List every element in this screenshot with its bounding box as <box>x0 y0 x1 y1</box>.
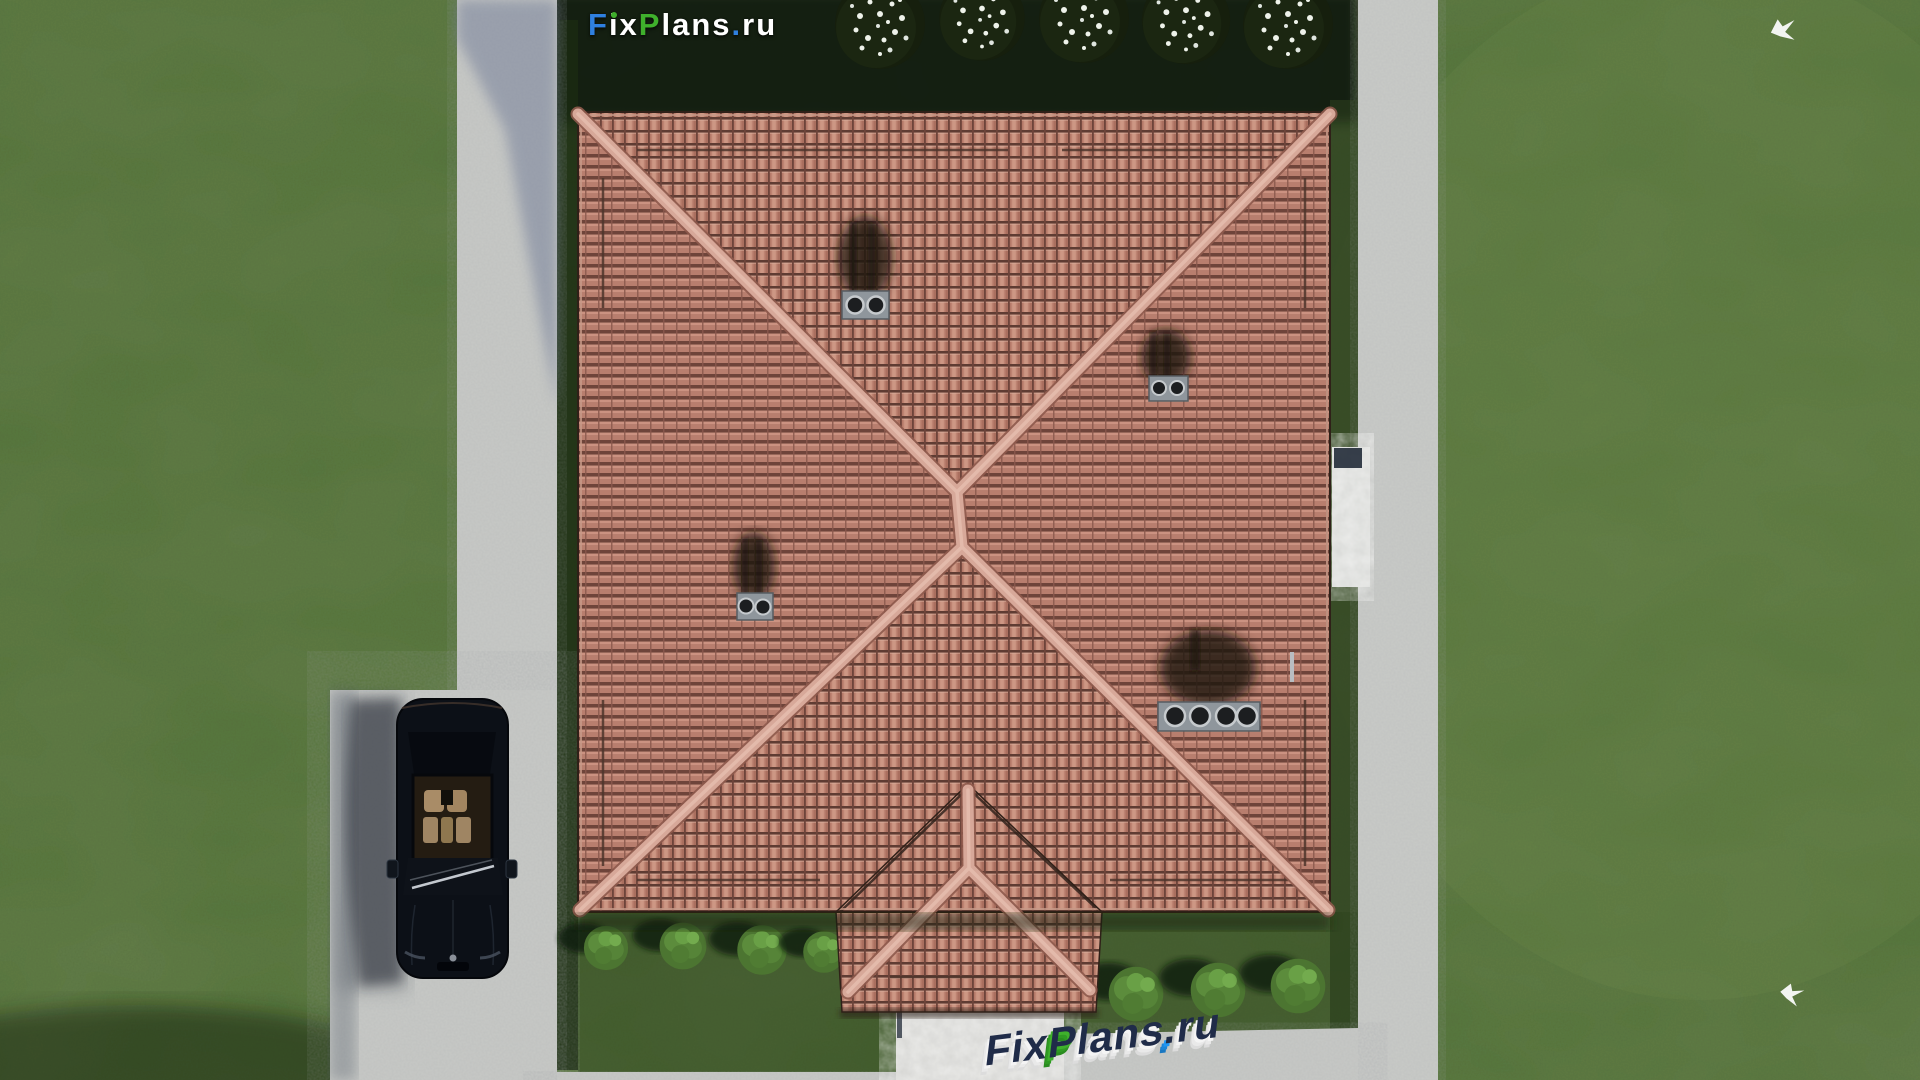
chimney-2 <box>1149 376 1188 401</box>
chimney-1 <box>842 291 889 319</box>
logo-part-ru: ru <box>742 7 777 42</box>
parked-car <box>338 698 517 990</box>
car-shadow <box>347 698 402 986</box>
roof-vent-pipe <box>1290 652 1294 682</box>
car-console <box>441 790 453 805</box>
side-door-mat <box>1334 448 1362 468</box>
chimney-4 <box>1158 702 1260 731</box>
chimney-3 <box>737 593 773 620</box>
site-plan-render: FixPlans.ru FixPlans.ru <box>0 0 1920 1080</box>
site-logo: FixPlans.ru <box>588 8 777 42</box>
car-grille <box>437 962 469 971</box>
car-mirror-right <box>506 860 517 878</box>
car-seat-4 <box>441 817 453 843</box>
car-emblem <box>450 955 457 962</box>
south-eave-shadow <box>578 914 1330 930</box>
logo-part-dot: . <box>732 7 743 42</box>
logo-i-dot <box>611 12 617 18</box>
main-hip-roof <box>578 112 1330 1018</box>
logo-part-plans-lans: lans <box>661 7 731 42</box>
wm-part-ru: ru <box>1174 998 1224 1051</box>
car-seat-3 <box>423 817 438 843</box>
scene-svg <box>0 0 1920 1080</box>
bottom-walkway-left <box>557 1072 896 1080</box>
car-mirror-left <box>387 860 398 878</box>
porch-eave-shadow <box>840 1008 1098 1018</box>
car-rear-window <box>408 732 496 774</box>
logo-part-plans-p: P <box>639 7 662 42</box>
logo-part-fix-f: F <box>588 7 609 42</box>
car-seat-5 <box>456 817 471 843</box>
